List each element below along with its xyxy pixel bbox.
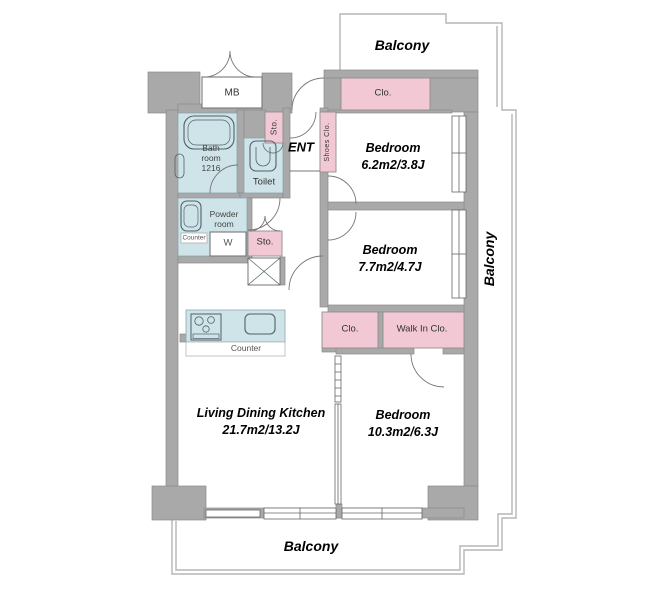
bedroom3-door-arc <box>411 354 444 387</box>
storage-entry-label: Sto. <box>269 119 278 135</box>
bath-room-label: Bath room 1216 <box>201 143 220 173</box>
balcony-bottom-label: Balcony <box>284 538 338 554</box>
ldk-door-arc <box>289 256 323 290</box>
floor-plan-drawing <box>0 0 646 600</box>
balcony-right-label: Balcony <box>481 232 497 286</box>
entrance-label: ENT <box>288 141 314 156</box>
storage-hall-label: Sto. <box>257 238 274 249</box>
entrance-door-inner-arc <box>290 112 316 138</box>
meter-box-door-right-arc <box>230 51 256 77</box>
bedroom1-label: Bedroom 6.2m2/3.8J <box>361 140 424 174</box>
walk-in-closet-label: Walk In Clo. <box>397 325 448 336</box>
balcony-top-label: Balcony <box>375 37 429 53</box>
bedroom2-door-arc <box>328 212 356 240</box>
bedroom1-door-arc <box>328 176 356 204</box>
toilet-door-arc <box>248 198 280 230</box>
bedroom3-label: Bedroom 10.3m2/6.3J <box>368 407 438 441</box>
washer-label: W <box>224 239 233 250</box>
meter-box-label: MB <box>225 87 240 99</box>
powder-counter-label: Counter <box>182 234 205 241</box>
closet-bed1-label: Clo. <box>375 89 392 100</box>
floor-plan: Balcony Balcony Balcony MB ENT Sto. Shoe… <box>0 0 646 600</box>
shoes-closet-label: Shoes Clo. <box>324 122 332 161</box>
closet-bed3-label: Clo. <box>342 325 359 336</box>
kitchen-counter-label: Counter <box>231 344 261 354</box>
ldk-label: Living Dining Kitchen 21.7m2/13.2J <box>197 405 325 439</box>
powder-room-label: Powder room <box>210 209 239 229</box>
meter-box-door-left-arc <box>204 51 230 77</box>
sliding-partition-upper <box>335 356 341 402</box>
bedroom2-label: Bedroom 7.7m2/4.7J <box>358 242 421 276</box>
entrance-door-outer-arc <box>292 78 324 110</box>
toilet-label: Toilet <box>253 178 275 189</box>
